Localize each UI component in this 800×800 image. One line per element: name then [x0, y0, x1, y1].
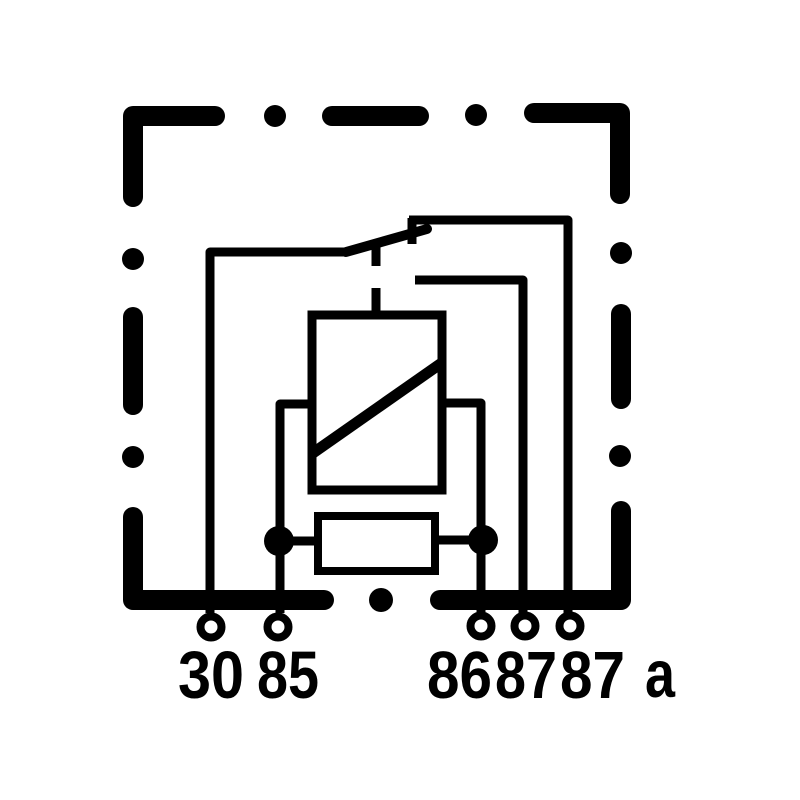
svg-text:87: 87: [560, 638, 625, 713]
svg-text:30: 30: [178, 638, 244, 713]
svg-text:87: 87: [495, 638, 557, 713]
svg-text:86: 86: [427, 638, 492, 713]
svg-text:a: a: [645, 637, 676, 712]
svg-text:85: 85: [257, 638, 319, 713]
